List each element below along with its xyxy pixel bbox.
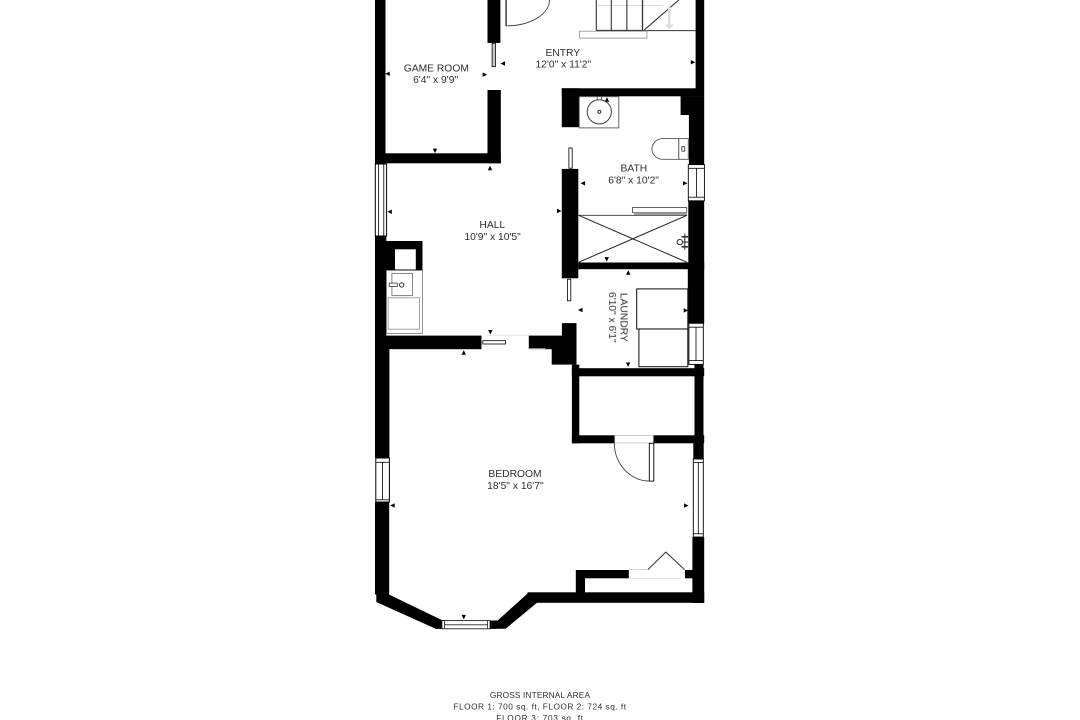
svg-text:LAUNDRY: LAUNDRY (618, 293, 629, 342)
svg-text:10'9" x 10'5": 10'9" x 10'5" (464, 232, 521, 243)
svg-text:6'8" x 10'2": 6'8" x 10'2" (608, 175, 659, 186)
svg-text:FLOOR 3: 703 sq. ft: FLOOR 3: 703 sq. ft (496, 713, 584, 720)
svg-text:6'10" x 6'1": 6'10" x 6'1" (606, 292, 617, 343)
svg-text:BATH: BATH (621, 164, 648, 175)
svg-text:ENTRY: ENTRY (545, 48, 580, 59)
svg-text:FLOOR 1: 700 sq. ft, FLOOR 2:: FLOOR 1: 700 sq. ft, FLOOR 2: 724 sq. ft (453, 701, 626, 711)
svg-text:6'4" x 9'9": 6'4" x 9'9" (413, 75, 458, 86)
svg-text:18'5" x 16'7": 18'5" x 16'7" (487, 481, 544, 492)
svg-text:12'0" x 11'2": 12'0" x 11'2" (535, 60, 591, 71)
svg-text:BEDROOM: BEDROOM (488, 469, 541, 480)
svg-text:GAME ROOM: GAME ROOM (404, 63, 469, 74)
svg-text:GROSS INTERNAL AREA: GROSS INTERNAL AREA (490, 690, 591, 700)
svg-text:HALL: HALL (479, 220, 505, 231)
